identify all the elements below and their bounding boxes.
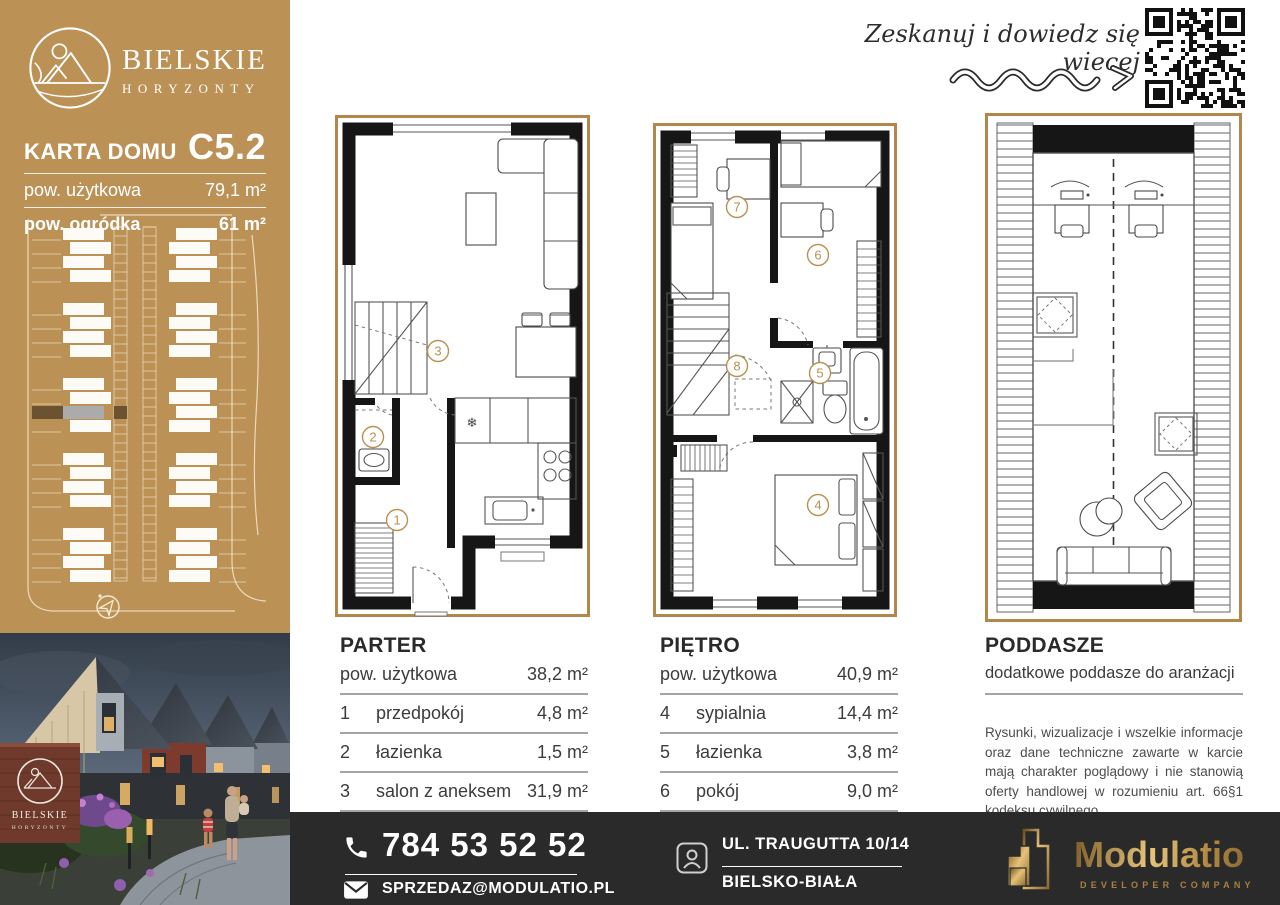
room-row: 4 sypialnia 14,4 m² (660, 695, 898, 734)
street-address[interactable]: UL. TRAUGUTTA 10/14 (722, 835, 909, 854)
highlighted-unit[interactable] (32, 406, 127, 419)
coffee-table (466, 193, 496, 245)
room-no: 1 (340, 703, 376, 724)
room-no: 3 (340, 781, 376, 802)
roof-slope-right (1194, 123, 1230, 612)
floor-area-value: 40,9 m² (837, 664, 898, 685)
hero-photo: BIELSKIE HORYZONTY (0, 633, 290, 905)
room-area: 14,4 m² (837, 703, 898, 724)
room-row: 3 salon z aneksem 31,9 m² (340, 773, 588, 812)
room-marker-2: 2 (369, 430, 376, 445)
sign-brand-name: BIELSKIE (12, 810, 68, 821)
room-marker-6: 6 (814, 248, 821, 263)
card-title: KARTA DOMU (24, 139, 177, 165)
divider (722, 866, 902, 867)
top-wall (1033, 125, 1194, 153)
room-name: przedpokój (376, 703, 537, 724)
room-no: 5 (660, 742, 696, 763)
mountain-sun-logo-icon (26, 24, 114, 112)
email-icon (343, 880, 369, 905)
room-row: 6 pokój 9,0 m² (660, 773, 898, 812)
sidebar: BIELSKIE HORYZONTY KARTA DOMU C5.2 pow. … (0, 0, 290, 905)
room-name: łazienka (376, 742, 537, 763)
sign-brand-subname: HORYZONTY (12, 825, 68, 831)
floor-area-label: pow. użytkowa (340, 664, 457, 685)
house-card-page: BIELSKIE HORYZONTY KARTA DOMU C5.2 pow. … (0, 0, 1280, 905)
room-name: sypialnia (696, 703, 837, 724)
room-name: łazienka (696, 742, 847, 763)
room-row: 1 przedpokój 4,8 m² (340, 695, 588, 734)
room-no: 6 (660, 781, 696, 802)
divider (345, 874, 577, 875)
site-houses (32, 227, 246, 582)
brand-header: BIELSKIE HORYZONTY (0, 22, 290, 122)
room-row: 5 łazienka 3,8 m² (660, 734, 898, 773)
room-area: 9,0 m² (847, 781, 898, 802)
floor-rooms: 1 przedpokój 4,8 m² 2 łazienka 1,5 m² 3 … (340, 695, 588, 812)
developer-tagline: DEVELOPER COMPANY (1080, 880, 1255, 890)
room-marker-7: 7 (733, 200, 740, 215)
brand-subname: HORYZONTY (122, 81, 267, 97)
email-address[interactable]: SPRZEDAZ@MODULATIO.PL (382, 880, 615, 898)
floor-title: PARTER (340, 634, 588, 658)
floor-plan-pietro: 45678 (653, 123, 897, 617)
poddasze-block: PODDASZE dodatkowe poddasze do aranżacji… (985, 634, 1243, 821)
contact-bar: 784 53 52 52 SPRZEDAZ@MODULATIO.PL UL. T… (290, 812, 1280, 905)
floor-title: PIĘTRO (660, 634, 898, 658)
floor-plan-parter: ❄ 123 (335, 115, 590, 617)
room-no: 4 (660, 703, 696, 724)
room-no: 2 (340, 742, 376, 763)
phone-icon (343, 834, 370, 866)
sofa (1057, 547, 1171, 585)
room-area: 1,5 m² (537, 742, 588, 763)
brand-name-block: BIELSKIE HORYZONTY (122, 44, 267, 97)
sidebar-gold-panel: BIELSKIE HORYZONTY KARTA DOMU C5.2 pow. … (0, 0, 290, 633)
legal-disclaimer: Rysunki, wizualizacje i wszelkie informa… (985, 723, 1243, 821)
compass-icon (97, 594, 119, 618)
floor-area-value: 38,2 m² (527, 664, 588, 685)
room-marker-8: 8 (733, 359, 740, 374)
room-area: 3,8 m² (847, 742, 898, 763)
floor-title: PODDASZE (985, 634, 1243, 658)
floor-plan-poddasze (985, 113, 1242, 622)
floor-area-row: pow. użytkowa 38,2 m² (340, 658, 588, 695)
estate-sign: BIELSKIE HORYZONTY (0, 743, 80, 843)
unit-number: C5.2 (188, 126, 266, 168)
developer-name: Modulatio (1074, 834, 1244, 876)
qr-code (1145, 8, 1245, 108)
room-area: 4,8 m² (537, 703, 588, 724)
poddasze-subtitle: dodatkowe poddasze do aranżacji (985, 664, 1243, 695)
room-marker-3: 3 (434, 344, 441, 359)
site-plan (0, 205, 290, 633)
room-row: 2 łazienka 1,5 m² (340, 734, 588, 773)
floor-area-row: pow. użytkowa 40,9 m² (660, 658, 898, 695)
floor-area-label: pow. użytkowa (660, 664, 777, 685)
location-icon (676, 842, 708, 879)
parter-table: PARTER pow. użytkowa 38,2 m² 1 przedpokó… (340, 634, 588, 812)
fridge-symbol: ❄ (467, 415, 478, 430)
wavy-arrow-icon (945, 58, 1145, 103)
modulatio-building-icon (1000, 826, 1060, 897)
phone-number[interactable]: 784 53 52 52 (382, 826, 587, 864)
divider (24, 173, 266, 174)
room-area: 31,9 m² (527, 781, 588, 802)
room-name: salon z aneksem (376, 781, 527, 802)
city[interactable]: BIELSKO-BIAŁA (722, 873, 858, 892)
roof-slope-left (997, 123, 1033, 612)
brand-name: BIELSKIE (122, 44, 267, 77)
room-marker-1: 1 (393, 513, 400, 528)
room-marker-4: 4 (814, 498, 821, 513)
room-name: pokój (696, 781, 847, 802)
usable-area-label: pow. użytkowa (24, 180, 141, 201)
usable-area-value: 79,1 m² (205, 180, 266, 201)
room-marker-5: 5 (816, 366, 823, 381)
